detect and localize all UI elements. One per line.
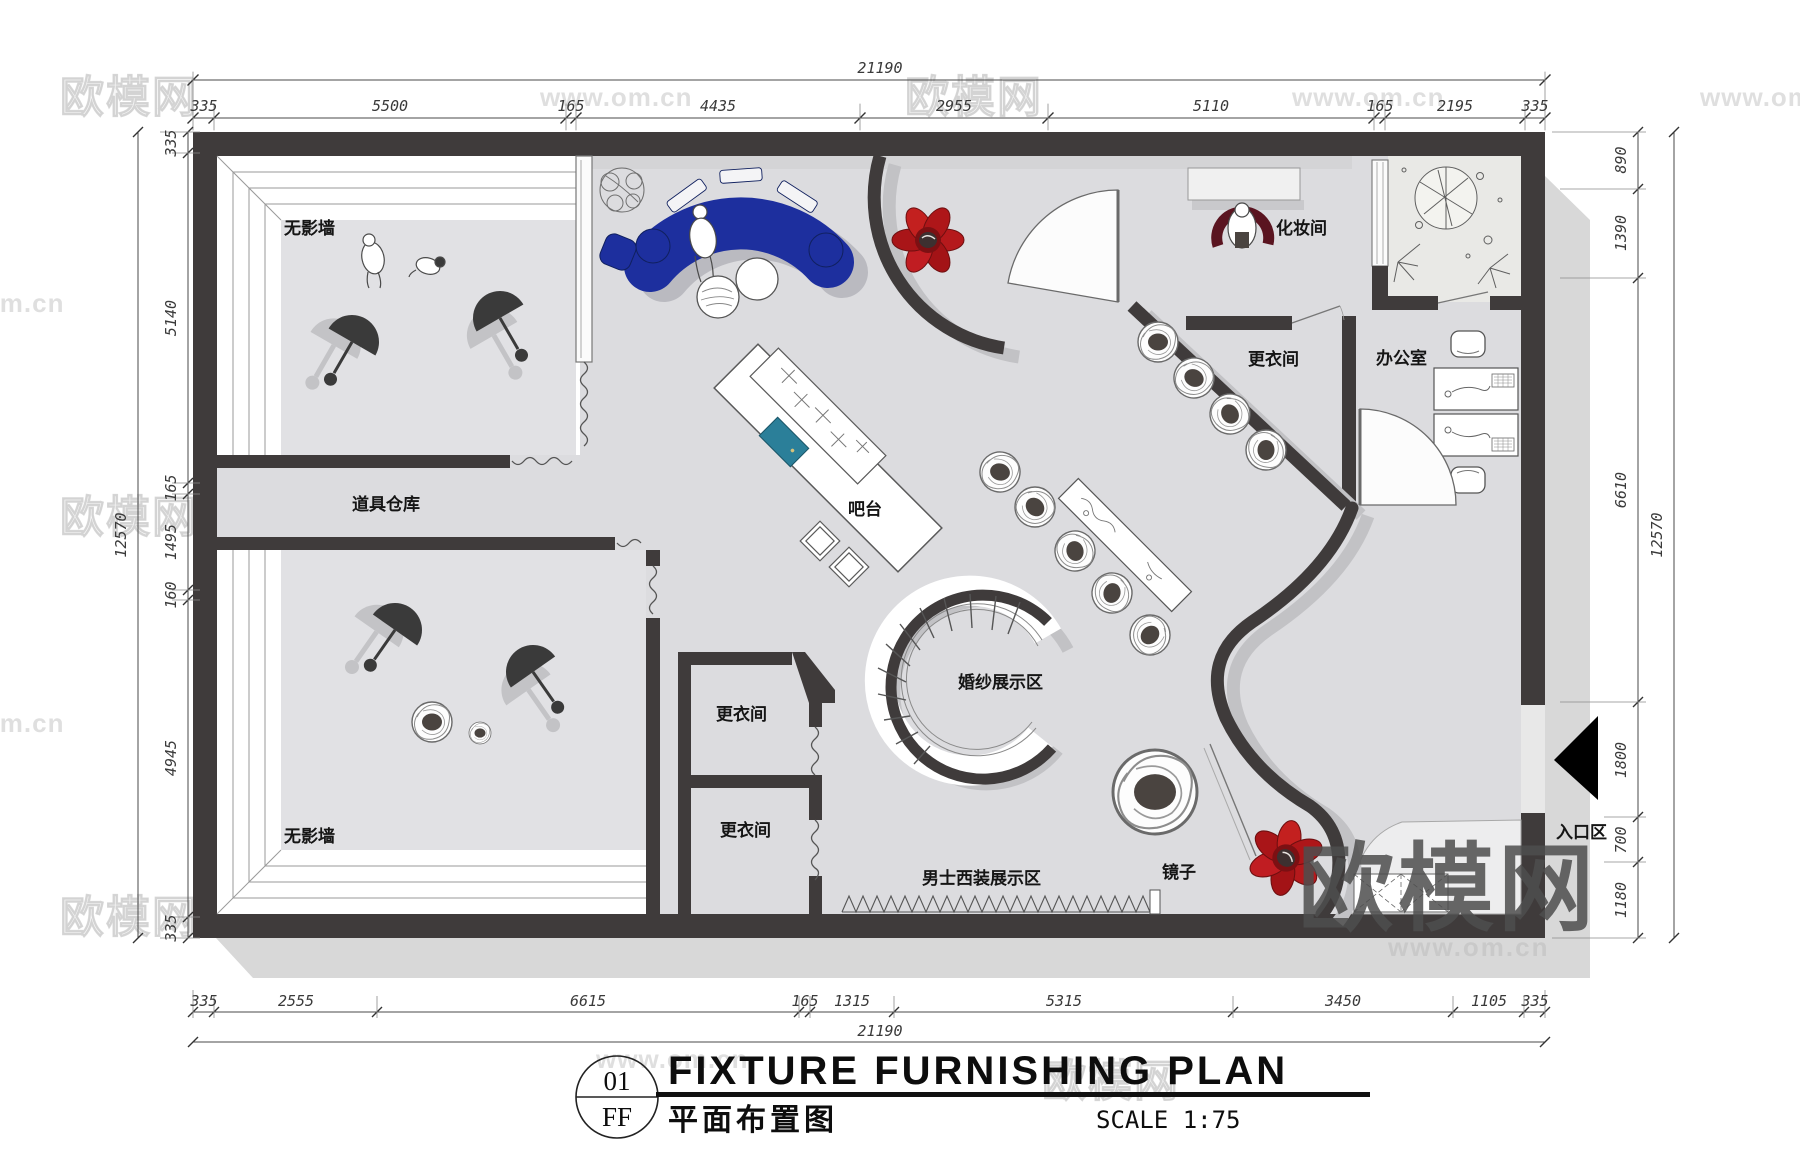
dim-label: 165 [162, 474, 180, 501]
room-label-bar: 吧台 [848, 499, 882, 519]
dim-label: 165 [791, 992, 818, 1010]
watermark-url: www.om.cn [0, 708, 65, 738]
wall [217, 455, 510, 468]
dim-label: 12570 [112, 512, 130, 557]
garden [1372, 156, 1521, 310]
wall-left [193, 132, 217, 938]
sofa-ottoman [809, 233, 843, 267]
dim-label: 165 [1366, 97, 1393, 115]
dim-label: 4945 [162, 740, 180, 776]
dim-label: 2555 [278, 992, 314, 1010]
room-label-wedding-display: 婚纱展示区 [958, 672, 1043, 692]
room-label-mens-suit: 男士西装展示区 [922, 868, 1041, 888]
watermark-url: www.om.cn [1699, 82, 1800, 112]
floor-plan-canvas: 欧模网 www.om.cn 欧模网 www.om.cn www.om.cn ww… [0, 0, 1800, 1155]
entrance-opening [1521, 705, 1545, 813]
room-label-fitting-room: 更衣间 [716, 704, 767, 724]
scale-label: SCALE 1:75 [1096, 1106, 1241, 1134]
wall [1372, 296, 1438, 310]
desk [1434, 414, 1518, 456]
wall [646, 550, 660, 566]
wall [678, 775, 822, 788]
room-label-makeup-room: 化妆间 [1276, 218, 1327, 238]
dim-label: 2195 [1437, 97, 1473, 115]
dim-label: 335 [189, 97, 217, 115]
dim-label: 2955 [936, 97, 972, 115]
dim-label: 700 [1612, 826, 1630, 853]
wall-right [1521, 132, 1545, 938]
dim-label: 1105 [1471, 992, 1507, 1010]
dim-label: 1315 [834, 992, 870, 1010]
dim-label: 6615 [570, 992, 606, 1010]
window [1372, 160, 1388, 266]
dim-label: 12570 [1648, 512, 1666, 557]
wall [678, 652, 792, 665]
dim-label: 4435 [700, 97, 736, 115]
wall [1490, 296, 1521, 310]
dim-label: 1800 [1612, 742, 1630, 778]
wall-shadow [592, 156, 1352, 169]
dim-label: 5110 [1193, 97, 1229, 115]
dim-label: 1495 [162, 524, 180, 560]
dim-label: 1390 [1612, 215, 1630, 251]
dimensions-bottom: 335 2555 6615 165 1315 5315 3450 1105 33… [188, 990, 1550, 1047]
dim-label: 21190 [857, 1022, 902, 1040]
watermark-brand-large: 欧模网 [1298, 836, 1598, 943]
wall [217, 537, 615, 550]
dim-label: 335 [1520, 97, 1548, 115]
dim-label: 160 [162, 581, 180, 608]
studio-upper: 无影墙 [217, 156, 580, 455]
wall [809, 695, 822, 727]
dim-label: 335 [162, 914, 180, 942]
flower-chair [469, 722, 491, 744]
flower-chair [1246, 430, 1286, 470]
wall [809, 876, 822, 914]
dim-label: 5140 [162, 300, 180, 336]
room-label-shadowless-wall: 无影墙 [283, 826, 335, 846]
office-chair [1451, 467, 1485, 493]
dim-label: 335 [162, 129, 180, 157]
office-chair [1451, 331, 1485, 357]
sliding-panel [576, 156, 592, 362]
title-block: 01 FF FIXTURE FURNISHING PLAN 平面布置图 SCAL… [576, 1049, 1370, 1138]
wall-top [193, 132, 1545, 156]
watermark-brand: 欧模网 [60, 73, 198, 122]
flower-chair-large [1113, 750, 1197, 834]
flower-chair [412, 702, 452, 742]
title-rule [656, 1092, 1370, 1097]
room-label-office: 办公室 [1376, 348, 1427, 368]
watermark-url: www.om.cn [1387, 932, 1550, 962]
room-label-fitting-room: 更衣间 [720, 820, 771, 840]
room-label-prop-storage: 道具仓库 [352, 494, 420, 514]
drawing-level: FF [602, 1102, 632, 1132]
sofa-ottoman [636, 229, 670, 263]
round-table [736, 258, 778, 300]
sheet-title-cn: 平面布置图 [668, 1104, 838, 1137]
dim-label: 21190 [857, 59, 902, 77]
room-label-fitting-room: 更衣间 [1248, 349, 1299, 369]
cad-sheet: 欧模网 www.om.cn 欧模网 www.om.cn www.om.cn ww… [0, 0, 1800, 1155]
dim-label: 335 [1520, 992, 1548, 1010]
wall [1186, 316, 1292, 330]
makeup-counter [1188, 168, 1300, 200]
dim-label: 890 [1612, 146, 1630, 173]
watermark-url: www.om.cn [0, 288, 65, 318]
studio-lower: 无影墙 [217, 550, 646, 914]
dim-label: 3450 [1324, 992, 1361, 1010]
drawing-number: 01 [604, 1066, 631, 1096]
wall [1342, 316, 1356, 508]
dim-label: 1180 [1612, 882, 1630, 918]
wall [809, 788, 822, 820]
rail-post [1150, 890, 1160, 914]
dim-label: 5500 [372, 97, 408, 115]
dim-label: 335 [189, 992, 217, 1010]
dim-label: 5315 [1046, 992, 1082, 1010]
dim-label: 6610 [1612, 472, 1630, 508]
room-label-shadowless-wall: 无影墙 [283, 218, 335, 238]
wall [646, 618, 660, 914]
dim-label: 165 [557, 97, 584, 115]
flower-chair [1138, 322, 1178, 362]
room-label-mirror: 镜子 [1162, 862, 1196, 882]
sheet-title: FIXTURE FURNISHING PLAN [668, 1049, 1288, 1093]
